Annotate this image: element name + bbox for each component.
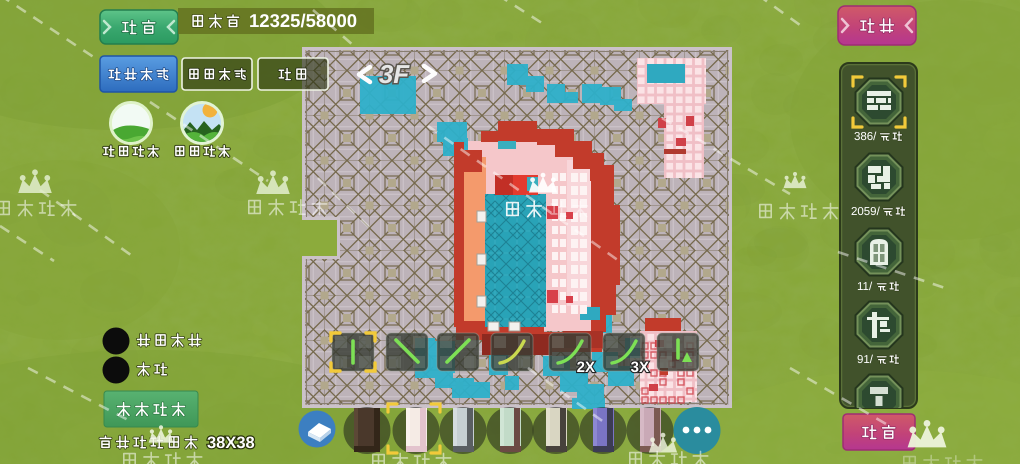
svg-text:386/: 386/ xyxy=(854,131,877,143)
svg-text:2059/: 2059/ xyxy=(851,206,881,218)
svg-text:3F: 3F xyxy=(379,59,410,89)
svg-text:38X38: 38X38 xyxy=(207,434,255,452)
svg-text:2X: 2X xyxy=(577,359,595,376)
svg-text:11/: 11/ xyxy=(857,281,873,293)
svg-text:12325/58000: 12325/58000 xyxy=(249,10,357,31)
svg-text:91/: 91/ xyxy=(857,354,874,366)
svg-text:3X: 3X xyxy=(631,359,649,376)
